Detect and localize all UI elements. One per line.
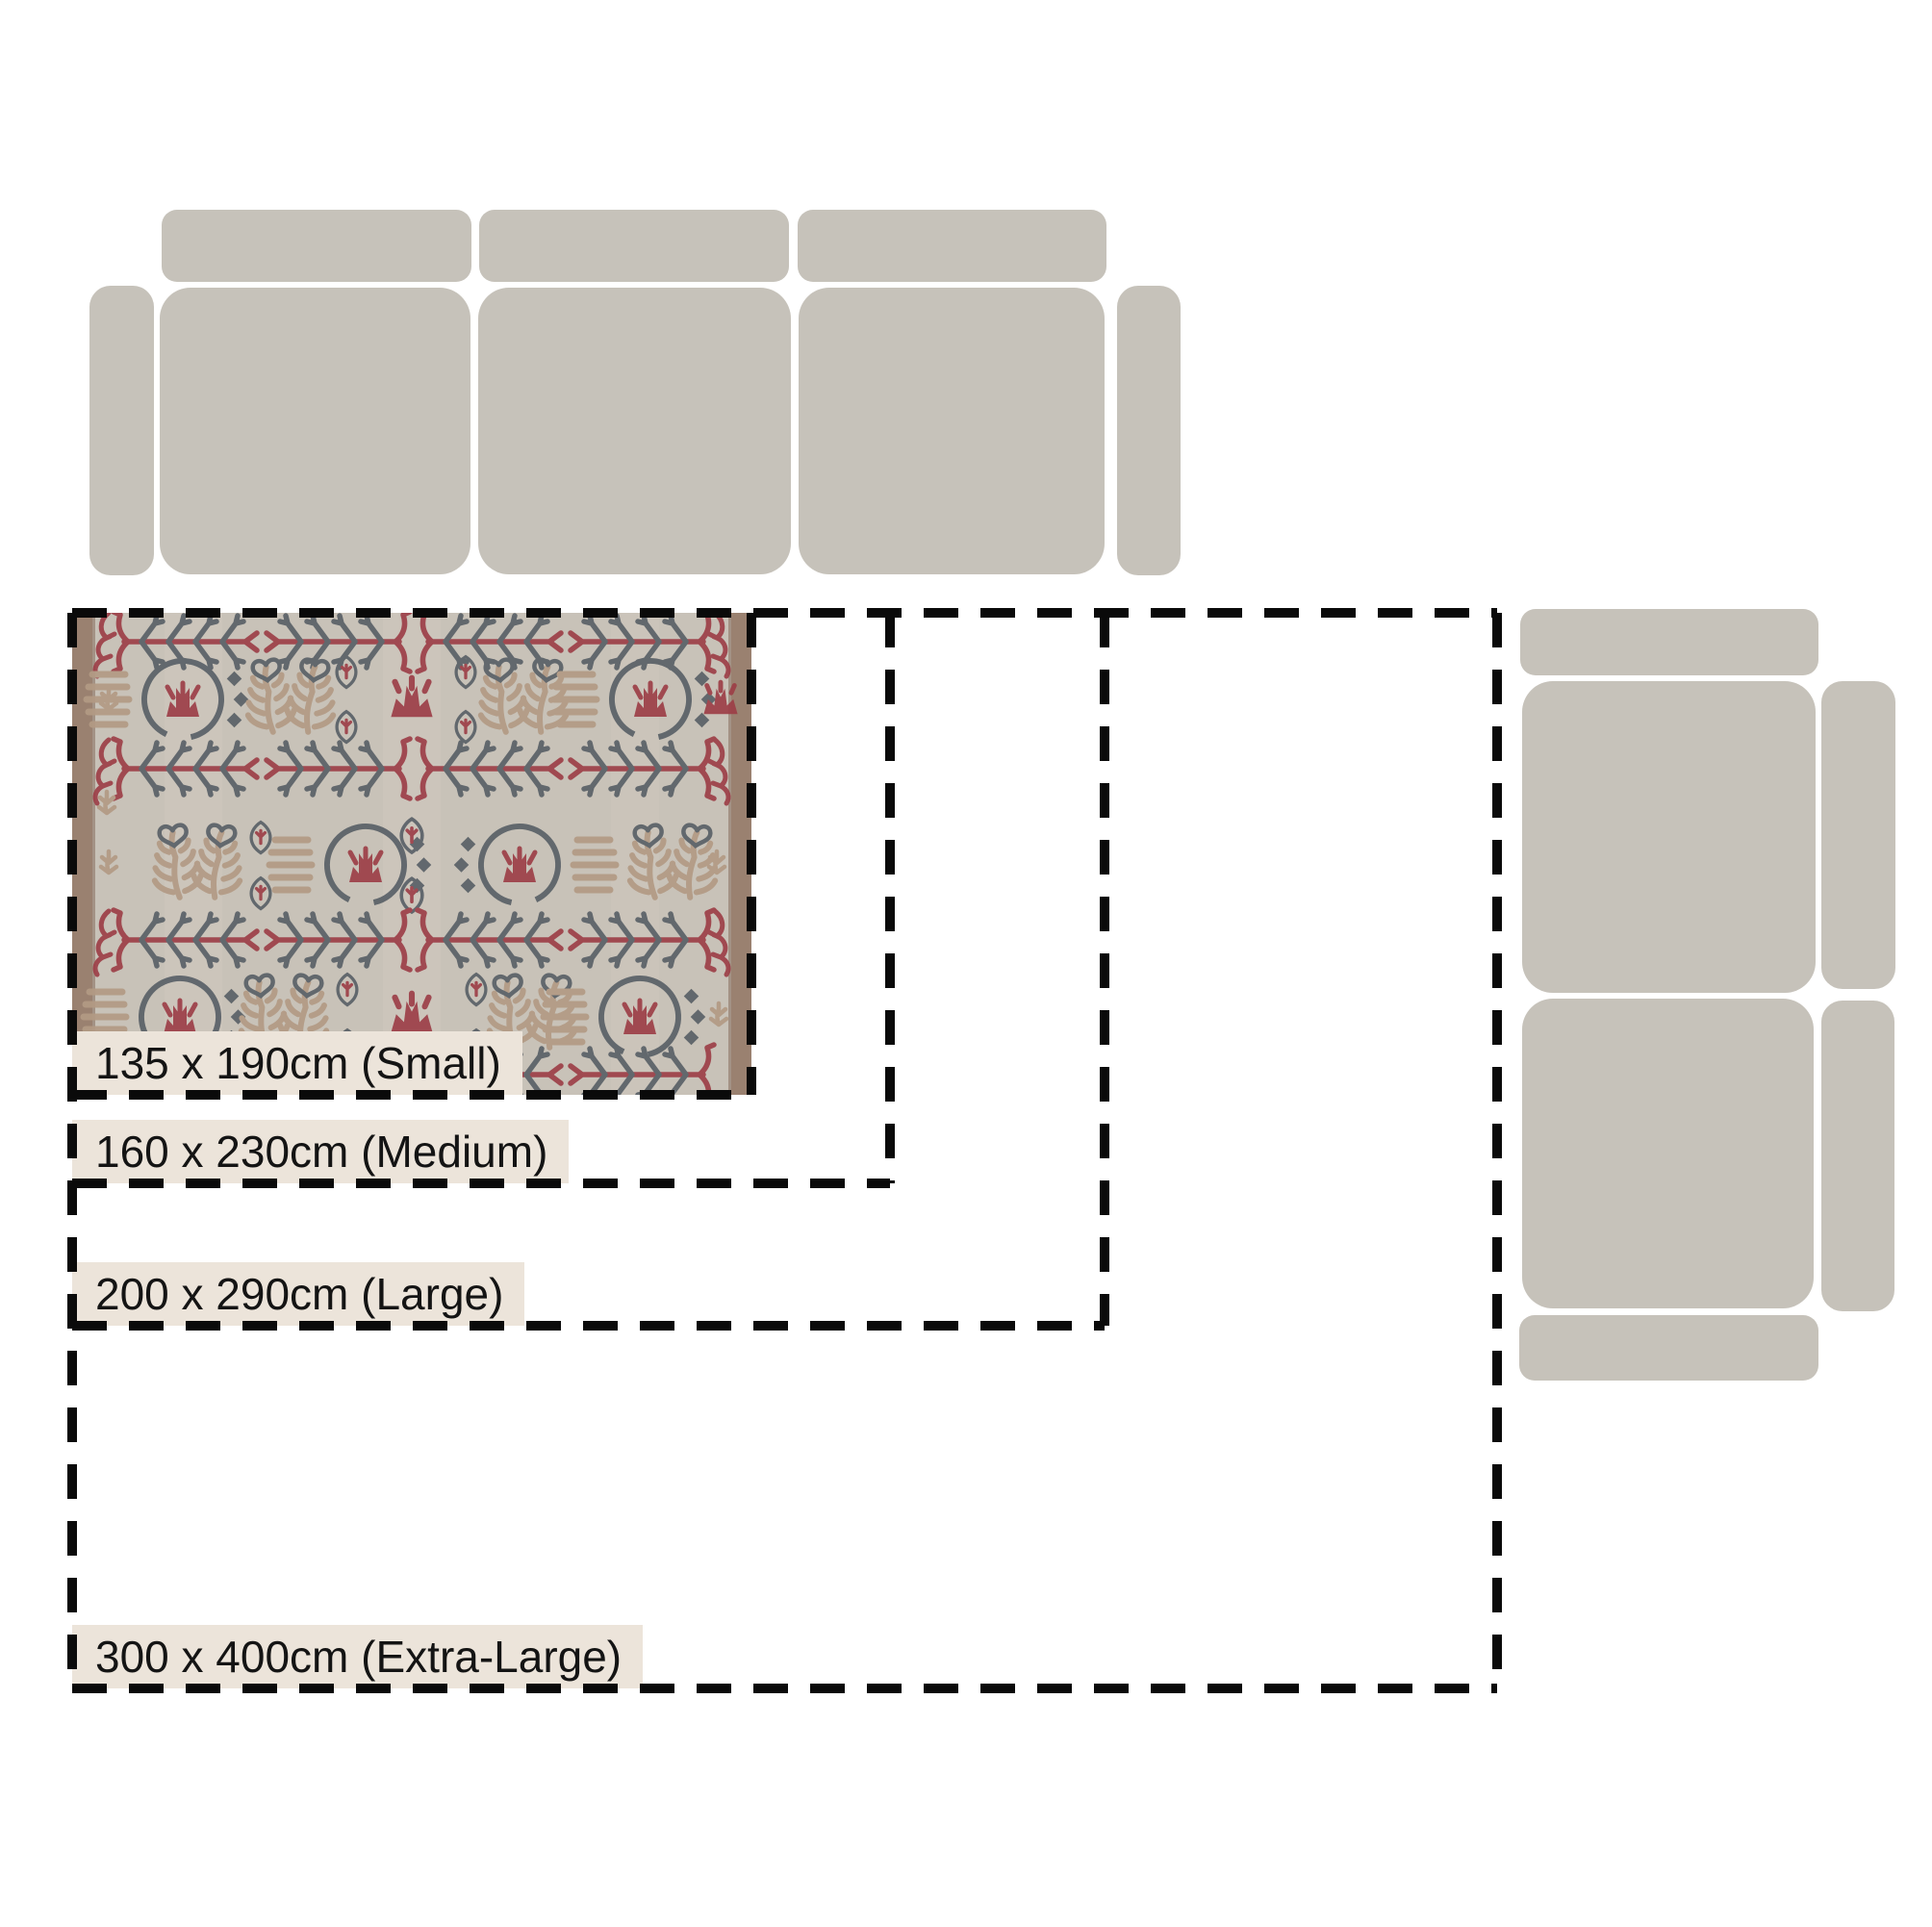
sectional-back-cushion-1	[1821, 681, 1895, 989]
sofa-back-cushion-1	[162, 210, 471, 282]
sofa-back-cushion-3	[798, 210, 1106, 282]
size-label-medium: 160 x 230cm (Medium)	[72, 1120, 569, 1183]
rug-photo	[72, 613, 751, 1095]
size-label-extra-large: 300 x 400cm (Extra-Large)	[72, 1625, 643, 1688]
size-label-small: 135 x 190cm (Small)	[72, 1031, 522, 1095]
sectional-armrest-bottom	[1519, 1315, 1818, 1381]
sofa-seat-cushion-1	[160, 288, 470, 574]
sectional-armrest-top	[1520, 609, 1818, 675]
sofa-seat-cushion-2	[478, 288, 791, 574]
sectional-seat-cushion-1	[1522, 681, 1816, 993]
sofa-armrest-left	[89, 286, 154, 575]
rug-size-guide-diagram: 135 x 190cm (Small) 160 x 230cm (Medium)…	[0, 0, 1932, 1927]
sofa-seat-cushion-3	[799, 288, 1105, 574]
size-label-large: 200 x 290cm (Large)	[72, 1262, 524, 1326]
sectional-back-cushion-2	[1821, 1001, 1894, 1311]
sectional-seat-cushion-2	[1522, 999, 1814, 1308]
sofa-back-cushion-2	[479, 210, 789, 282]
sofa-armrest-right	[1117, 286, 1181, 575]
